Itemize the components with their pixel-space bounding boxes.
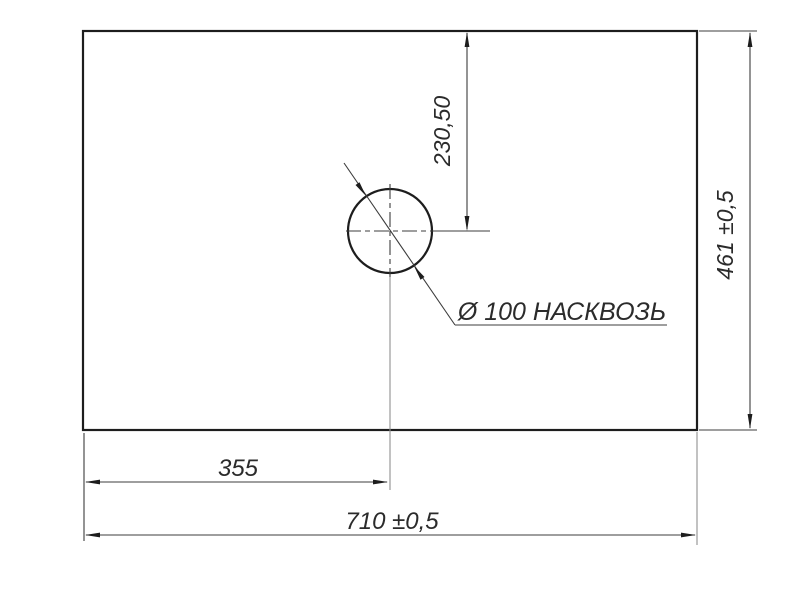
arrowhead: [85, 480, 100, 485]
arrowhead: [465, 32, 470, 47]
dimension-label: 230,50: [429, 96, 455, 168]
technical-drawing: 230,50 461 ±0,5 355 710 ±0,5: [0, 0, 793, 600]
hole-callout-label: Ø 100 НАСКВОЗЬ: [457, 298, 666, 326]
arrowhead: [748, 414, 753, 429]
dimension-panel-height: 461 ±0,5: [699, 31, 757, 430]
cad-drawing-svg: 230,50 461 ±0,5 355 710 ±0,5: [0, 0, 793, 600]
dimension-label: 461 ±0,5: [712, 190, 738, 280]
leader-hole-callout: Ø 100 НАСКВОЗЬ: [344, 163, 667, 326]
dimension-hole-offset-horizontal: 355: [84, 433, 388, 541]
arrowhead: [373, 480, 388, 485]
arrowhead: [748, 32, 753, 47]
arrowhead: [85, 533, 100, 538]
dimension-label: 355: [218, 455, 259, 482]
arrowhead: [414, 266, 425, 280]
dimension-label: 710 ±0,5: [345, 508, 439, 535]
arrowhead: [681, 533, 696, 538]
arrowhead: [465, 216, 470, 231]
arrowhead: [356, 182, 367, 196]
dimension-hole-offset-vertical: 230,50: [429, 32, 469, 231]
dimension-panel-width: 710 ±0,5: [85, 432, 697, 545]
